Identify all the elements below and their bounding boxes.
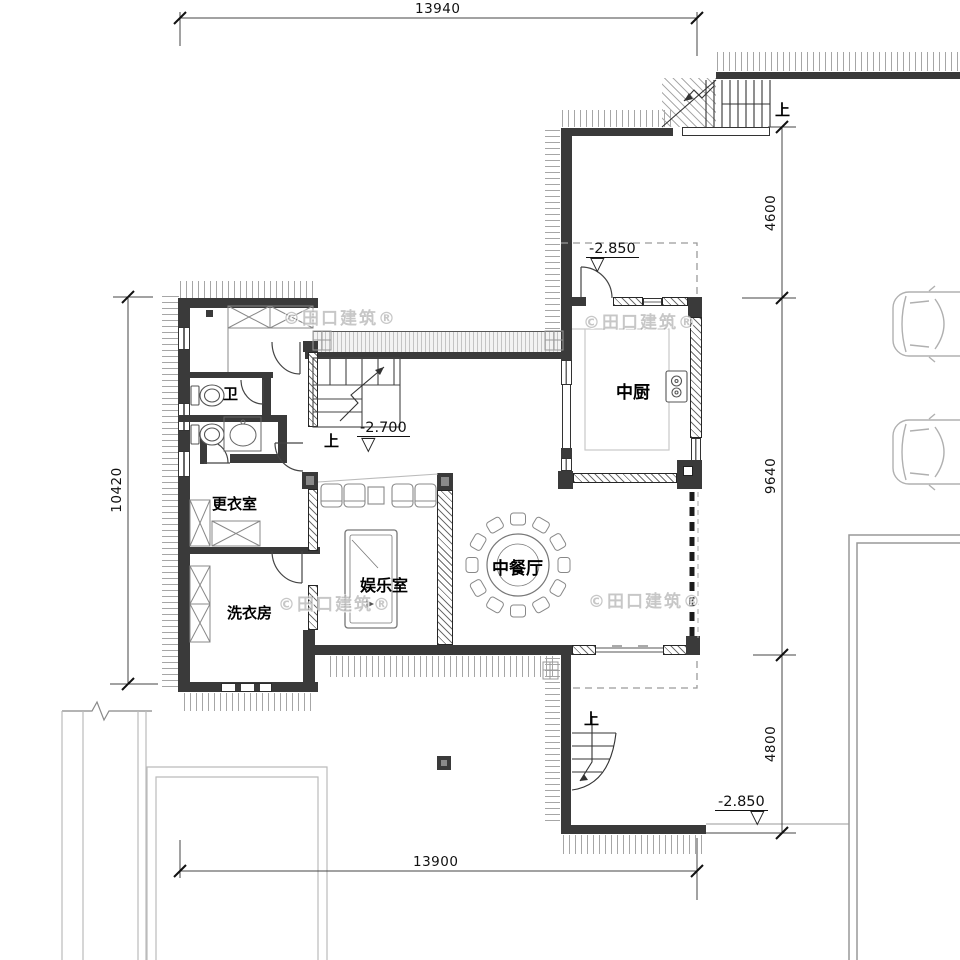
vanity-sink [224, 417, 261, 451]
room-label-wc: 卫 [223, 383, 238, 404]
car-2 [893, 414, 960, 490]
dim-right-middle: 9640 [763, 458, 779, 494]
dim-top: 13940 [415, 1, 460, 17]
site-lines-bottom-left [62, 702, 327, 960]
stair-up-label-hall: 上 [324, 430, 339, 451]
pool-edge [849, 535, 960, 960]
dim-right-upper: 4600 [763, 195, 779, 231]
stair-up-label-entry: 上 [775, 99, 790, 120]
dressing-wardrobe [212, 521, 260, 546]
dim-bottom: 13900 [413, 854, 458, 870]
door-bedroom [272, 342, 300, 374]
dining-bottom-window [596, 646, 663, 652]
elevation-kitchen-entry-symbol: ▽ [590, 255, 605, 274]
floor-plan: 13940 13900 10420 4600 9640 4800 -2.850 … [0, 0, 960, 960]
door-laundry [272, 551, 302, 583]
room-label-kitchen: 中厨 [616, 378, 650, 403]
room-label-dressing: 更衣室 [212, 493, 257, 514]
elevation-hall-symbol: ▽ [361, 435, 376, 454]
room-label-laundry: 洗衣房 [227, 602, 272, 623]
sofa-group [318, 474, 438, 507]
stair-up-label-rear: 上 [584, 708, 599, 729]
plan-linework [0, 0, 960, 960]
watermark-2: ©田口建筑® [583, 308, 697, 333]
dressing-shelf [190, 500, 210, 546]
toilet-bath2 [191, 424, 224, 445]
dashed-overhang-dining [573, 656, 697, 688]
watermark-3: ©田口建筑® [278, 590, 392, 615]
laundry-shelf [190, 566, 210, 642]
car-1 [893, 286, 960, 362]
watermark-1: ©田口建筑® [283, 304, 397, 329]
room-label-dining: 中餐厅 [492, 554, 543, 579]
dim-left: 10420 [109, 467, 125, 512]
toilet-wc [191, 385, 224, 406]
entry-stair [662, 80, 770, 127]
kitchen-stove [666, 371, 687, 402]
door-dressing [275, 443, 303, 471]
elevation-rear-terrace-symbol: ▽ [750, 808, 765, 827]
hall-stair [313, 358, 400, 427]
watermark-4: ©田口建筑® [588, 587, 702, 612]
door-wc [241, 380, 263, 404]
dimension-ticks [122, 12, 788, 877]
dim-right-lower: 4800 [763, 726, 779, 762]
sliding-door-dashed [692, 492, 698, 638]
